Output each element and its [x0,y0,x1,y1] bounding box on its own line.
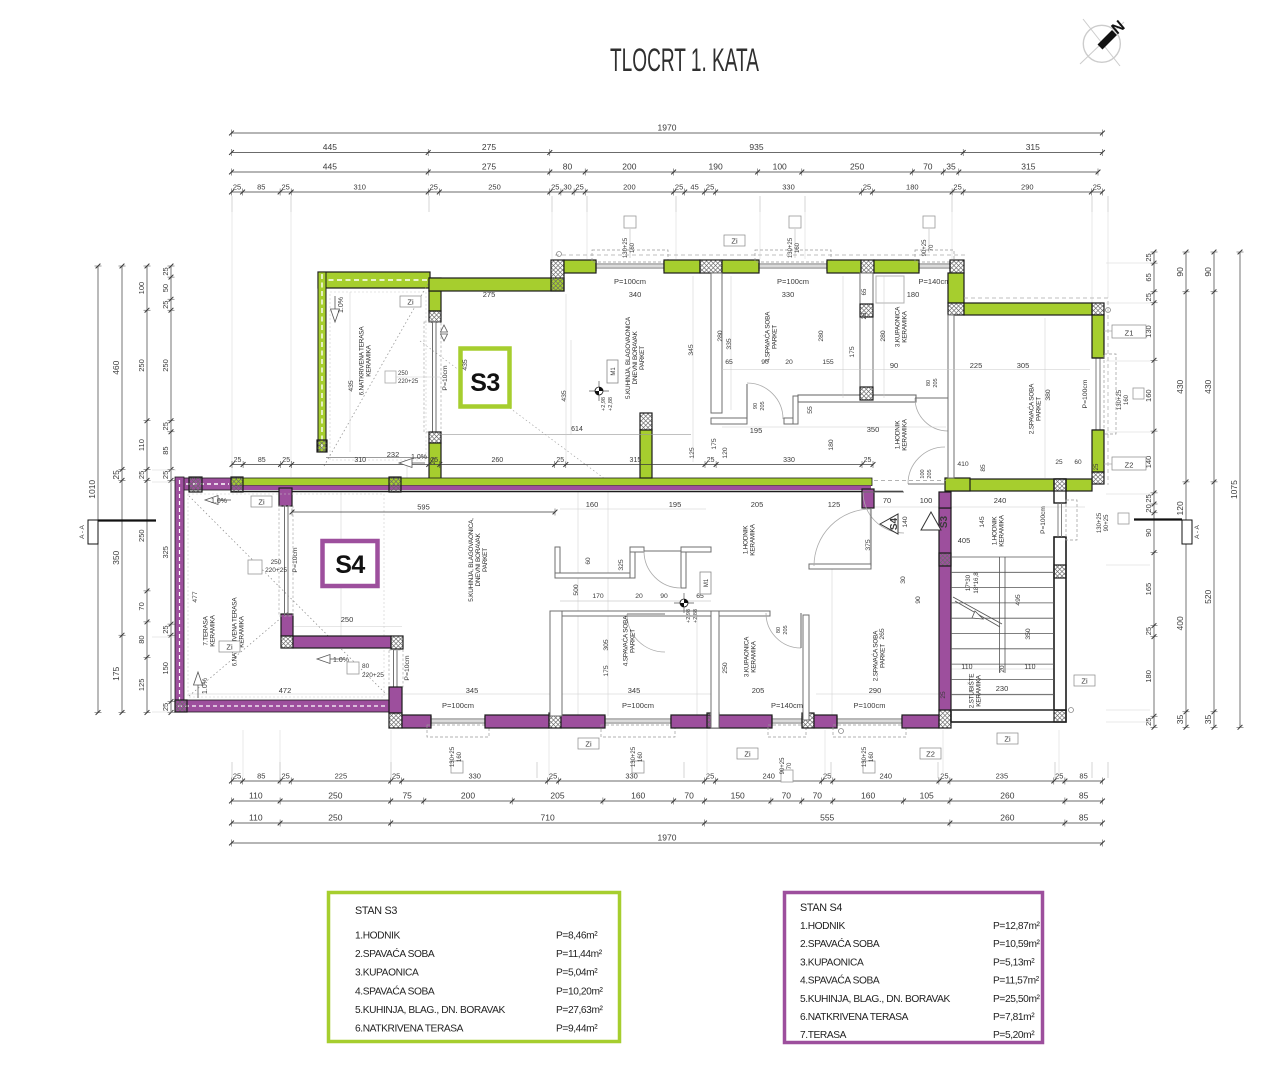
svg-text:+2,88: +2,88 [693,609,699,623]
svg-text:435: 435 [348,380,355,392]
svg-text:TLOCRT 1. KATA: TLOCRT 1. KATA [610,42,759,78]
svg-text:+2,98: +2,98 [601,397,607,411]
svg-text:90: 90 [753,403,759,409]
svg-text:4.SPAVAĆA SOBA: 4.SPAVAĆA SOBA [800,974,880,987]
svg-text:5.KUHINJA, BLAG., DN. BORAVAK: 5.KUHINJA, BLAG., DN. BORAVAK [800,994,951,1005]
svg-text:25: 25 [1144,494,1153,502]
svg-text:130+25: 130+25 [1097,512,1103,533]
svg-text:20: 20 [635,593,643,600]
svg-text:1010: 1010 [87,480,97,499]
svg-text:5.KUHINJA, BLAGOVAONICA,: 5.KUHINJA, BLAGOVAONICA, [468,518,475,602]
svg-text:345: 345 [466,686,479,695]
svg-text:25: 25 [1093,183,1101,192]
svg-text:160: 160 [861,791,875,801]
svg-text:S4: S4 [335,551,365,579]
svg-text:400: 400 [1175,616,1185,630]
svg-text:175: 175 [603,665,610,677]
svg-text:160: 160 [869,751,875,762]
svg-text:25: 25 [863,183,871,192]
svg-text:P=100cm: P=100cm [1082,379,1089,408]
svg-text:25: 25 [953,183,961,192]
svg-text:PARKET: PARKET [772,325,779,349]
svg-text:Z2: Z2 [926,750,935,759]
svg-text:110: 110 [1024,664,1035,671]
svg-text:1.HODNIK: 1.HODNIK [355,931,401,942]
svg-text:Zi: Zi [407,298,414,307]
svg-text:PARKET: PARKET [630,629,637,653]
svg-text:240: 240 [762,772,775,781]
svg-text:90: 90 [915,596,922,604]
svg-text:70: 70 [137,602,146,610]
svg-text:STAN S3: STAN S3 [355,905,397,917]
svg-text:410: 410 [957,461,969,468]
svg-text:Zi: Zi [1081,677,1088,686]
svg-text:250: 250 [271,559,282,566]
svg-text:7.TERASA: 7.TERASA [202,615,209,645]
svg-text:330: 330 [782,183,795,192]
svg-text:125: 125 [689,447,696,459]
svg-text:1.0%: 1.0% [333,657,349,664]
svg-text:130+25: 130+25 [862,746,868,767]
svg-text:25: 25 [282,772,290,781]
svg-text:P=5,04m²: P=5,04m² [556,968,598,979]
svg-text:110: 110 [249,791,263,801]
svg-text:205: 205 [550,791,564,801]
svg-text:200: 200 [622,162,636,172]
svg-text:6.NATKRIVENA TERASA: 6.NATKRIVENA TERASA [800,1012,909,1023]
svg-text:25: 25 [161,267,170,275]
svg-text:160: 160 [795,242,801,253]
svg-text:315: 315 [1021,162,1035,172]
svg-text:Z1: Z1 [1125,329,1134,338]
svg-text:25: 25 [111,470,121,480]
svg-text:250: 250 [488,183,501,192]
svg-text:25: 25 [556,457,564,464]
svg-text:KERAMIKA: KERAMIKA [210,614,217,646]
svg-text:250: 250 [137,359,146,372]
svg-text:165: 165 [1144,583,1153,596]
svg-text:Z2: Z2 [1125,461,1134,470]
svg-text:25: 25 [1055,459,1063,466]
svg-text:4.SPAVAĆA SOBA: 4.SPAVAĆA SOBA [620,615,629,666]
svg-text:85: 85 [257,772,265,781]
svg-text:435: 435 [561,390,568,402]
svg-text:310: 310 [354,457,366,464]
svg-text:195: 195 [750,426,763,435]
svg-text:430: 430 [1203,379,1213,393]
svg-text:240: 240 [994,496,1007,505]
svg-text:Zi: Zi [226,643,233,652]
svg-text:345: 345 [628,686,641,695]
svg-text:230: 230 [996,684,1009,693]
svg-text:275: 275 [482,162,496,172]
svg-text:275: 275 [483,290,496,299]
svg-text:100: 100 [920,469,926,478]
svg-text:350: 350 [1025,628,1032,640]
svg-text:110: 110 [249,813,263,823]
svg-text:S3: S3 [470,369,500,397]
svg-text:PARKET: PARKET [482,548,489,572]
svg-text:250: 250 [850,162,864,172]
svg-text:430: 430 [1175,379,1185,393]
svg-text:105: 105 [920,791,934,801]
svg-text:35: 35 [1203,715,1213,725]
svg-text:25: 25 [864,457,872,464]
svg-text:555: 555 [820,813,834,823]
svg-text:240: 240 [880,772,893,781]
svg-text:250: 250 [328,791,342,801]
svg-text:P=7,81m²: P=7,81m² [993,1012,1035,1023]
svg-text:80: 80 [137,635,146,643]
svg-text:P=140cm: P=140cm [771,701,803,710]
svg-text:150: 150 [161,662,170,675]
svg-text:90: 90 [1203,267,1213,277]
svg-text:70: 70 [813,791,823,801]
svg-text:P=100cm: P=100cm [614,277,646,286]
svg-text:60: 60 [1074,459,1082,466]
svg-text:235: 235 [996,772,1009,781]
svg-text:P=11,57m²: P=11,57m² [993,976,1040,987]
svg-text:330: 330 [782,290,795,299]
svg-text:90: 90 [660,593,668,600]
svg-text:125: 125 [828,500,841,509]
svg-text:340: 340 [629,290,642,299]
svg-text:P=100cm: P=100cm [442,701,474,710]
svg-text:1.HODNIK: 1.HODNIK [894,420,901,450]
svg-text:25: 25 [282,457,290,464]
svg-text:265: 265 [879,628,886,640]
svg-text:25: 25 [233,183,241,192]
svg-text:KERAMIKA: KERAMIKA [902,418,909,450]
svg-text:477: 477 [192,591,199,603]
svg-text:4.SPAVAĆA SOBA: 4.SPAVAĆA SOBA [355,984,435,997]
svg-text:3.KUPAONICA: 3.KUPAONICA [743,636,750,677]
svg-text:110: 110 [961,664,972,671]
svg-text:60: 60 [585,557,592,565]
svg-text:110: 110 [137,439,146,451]
svg-text:100: 100 [920,496,933,505]
svg-text:Zi: Zi [1004,735,1011,744]
svg-text:1.0%: 1.0% [202,678,209,694]
svg-text:P=10cm: P=10cm [404,655,411,680]
svg-text:130+25: 130+25 [1117,389,1123,410]
svg-text:85: 85 [257,183,265,192]
svg-text:180: 180 [828,439,835,451]
svg-text:90: 90 [761,359,769,366]
svg-text:A - A: A - A [1194,524,1201,538]
svg-text:250: 250 [722,662,729,674]
svg-text:P=9,44m²: P=9,44m² [556,1024,598,1035]
svg-text:120: 120 [722,447,729,459]
svg-text:375: 375 [865,539,872,551]
svg-text:30: 30 [563,183,571,192]
svg-text:75: 75 [402,791,412,801]
svg-text:310: 310 [353,183,366,192]
svg-text:160: 160 [638,751,644,762]
svg-text:100: 100 [773,162,787,172]
svg-text:A - A: A - A [79,524,86,538]
svg-text:M1: M1 [704,578,710,587]
svg-text:160: 160 [630,242,636,253]
svg-text:PARKET: PARKET [880,644,887,668]
svg-text:25: 25 [707,457,715,464]
svg-text:20: 20 [1144,504,1153,512]
svg-text:130+25: 130+25 [450,746,456,767]
svg-text:495: 495 [1015,594,1022,606]
svg-text:200: 200 [461,791,475,801]
svg-text:P=27,63m²: P=27,63m² [556,1005,604,1016]
svg-text:P=5,20m²: P=5,20m² [993,1030,1035,1041]
svg-text:250: 250 [398,371,409,377]
svg-text:225: 225 [335,772,348,781]
svg-text:180: 180 [1144,670,1153,683]
svg-text:305: 305 [603,639,610,651]
svg-text:335: 335 [726,338,733,350]
svg-text:55: 55 [807,406,814,414]
svg-text:45: 45 [690,183,698,192]
svg-text:6.NATKRIVENA TERASA: 6.NATKRIVENA TERASA [355,1024,464,1035]
svg-text:220+25: 220+25 [362,672,384,679]
svg-text:25: 25 [161,471,170,479]
svg-text:350: 350 [111,550,121,564]
svg-text:25: 25 [549,772,557,781]
svg-text:80: 80 [362,663,370,670]
svg-text:25: 25 [1144,718,1153,726]
svg-text:65: 65 [1144,273,1153,281]
svg-text:6.NATKRIVENA TERASA: 6.NATKRIVENA TERASA [231,597,238,667]
svg-text:30: 30 [900,576,907,584]
svg-text:1.HODNIK: 1.HODNIK [991,516,998,546]
svg-text:2.SPAVAĆA SOBA: 2.SPAVAĆA SOBA [800,937,880,950]
svg-text:160: 160 [1144,389,1153,402]
svg-text:2.STUBIŠTE: 2.STUBIŠTE [966,674,975,709]
svg-text:305: 305 [1017,361,1030,370]
svg-text:345: 345 [688,344,695,356]
svg-text:25: 25 [823,772,831,781]
svg-text:3.KUPAONICA: 3.KUPAONICA [355,968,419,979]
svg-text:25: 25 [1055,772,1063,781]
svg-text:160: 160 [1124,394,1130,405]
svg-text:1970: 1970 [658,833,677,843]
svg-text:280: 280 [880,330,887,342]
svg-text:25: 25 [551,183,559,192]
svg-text:315: 315 [1026,142,1040,152]
svg-text:P=10cm: P=10cm [442,365,449,390]
svg-text:P=100cm: P=100cm [622,701,654,710]
svg-text:P=5,13m²: P=5,13m² [993,957,1035,968]
svg-text:595: 595 [417,503,430,512]
svg-text:380: 380 [1045,389,1052,401]
svg-text:Zi: Zi [585,740,592,749]
svg-text:STAN S4: STAN S4 [800,902,842,914]
svg-text:2.SPAVAĆA SOBA: 2.SPAVAĆA SOBA [1026,383,1035,434]
svg-text:195: 195 [669,500,682,509]
svg-text:25: 25 [430,183,438,192]
svg-text:25: 25 [940,691,947,699]
svg-text:190: 190 [709,162,723,172]
svg-text:70: 70 [929,244,935,251]
svg-text:M1: M1 [611,367,617,376]
svg-text:P=10cm: P=10cm [292,547,299,572]
svg-text:6.NATKRIVENA TERASA: 6.NATKRIVENA TERASA [358,326,365,396]
svg-text:KERAMIKA: KERAMIKA [976,674,983,706]
svg-text:325: 325 [618,559,625,571]
svg-text:P=10,20m²: P=10,20m² [556,986,604,997]
svg-text:KERAMIKA: KERAMIKA [751,640,758,672]
svg-text:80: 80 [563,162,573,172]
svg-text:80: 80 [776,627,782,633]
svg-text:25: 25 [576,183,584,192]
svg-text:85: 85 [1079,813,1089,823]
svg-text:325: 325 [161,546,170,559]
svg-text:KERAMIKA: KERAMIKA [750,523,757,555]
svg-text:710: 710 [541,813,555,823]
svg-text:P=12,87m²: P=12,87m² [993,921,1041,932]
svg-text:500: 500 [573,584,580,596]
svg-text:S3: S3 [939,515,950,528]
svg-text:20: 20 [999,665,1006,673]
svg-text:250: 250 [137,529,146,542]
svg-text:50: 50 [161,284,170,292]
svg-text:5.KUHINJA, BLAG., DN. BORAVAK: 5.KUHINJA, BLAG., DN. BORAVAK [355,1005,506,1016]
svg-text:PARKET: PARKET [1036,397,1043,421]
svg-text:P=11,44m²: P=11,44m² [556,949,603,960]
svg-text:200: 200 [623,183,636,192]
svg-text:120: 120 [1175,501,1185,515]
svg-text:+2,88: +2,88 [608,397,614,411]
svg-text:20: 20 [785,359,793,366]
svg-text:1.0%: 1.0% [411,454,427,461]
svg-text:Zi: Zi [258,498,265,507]
svg-text:18*16,8: 18*16,8 [973,572,980,594]
svg-text:100: 100 [137,282,146,295]
svg-text:150: 150 [731,791,745,801]
svg-text:90: 90 [1144,529,1153,537]
svg-text:250: 250 [328,813,342,823]
svg-text:160: 160 [586,500,599,509]
svg-text:P=100cm: P=100cm [777,277,809,286]
svg-text:25: 25 [1144,253,1153,261]
svg-text:2.SPAVAĆA SOBA: 2.SPAVAĆA SOBA [355,947,435,960]
svg-text:3.KUPAONICA: 3.KUPAONICA [894,306,901,347]
svg-text:25: 25 [282,183,290,192]
svg-text:85: 85 [1079,791,1089,801]
svg-text:25: 25 [161,422,170,430]
svg-text:35: 35 [946,162,956,172]
svg-text:1.HODNIK: 1.HODNIK [742,525,749,555]
svg-text:+2,98: +2,98 [686,609,692,623]
svg-text:P=140cm: P=140cm [919,277,951,286]
svg-text:P=8,46m²: P=8,46m² [556,931,598,942]
svg-text:260: 260 [1000,813,1014,823]
svg-text:350: 350 [867,425,880,434]
svg-text:205: 205 [760,401,766,410]
svg-text:180: 180 [907,290,920,299]
svg-text:1970: 1970 [658,123,677,133]
svg-text:1075: 1075 [1229,480,1239,499]
svg-text:25: 25 [392,772,400,781]
svg-text:175: 175 [849,346,856,358]
svg-text:445: 445 [323,162,337,172]
svg-text:70: 70 [923,162,933,172]
svg-text:280: 280 [818,330,825,342]
svg-text:225: 225 [970,361,983,370]
svg-text:155: 155 [822,359,834,366]
svg-text:25: 25 [862,312,868,319]
svg-text:125: 125 [137,679,146,692]
svg-text:140: 140 [902,516,909,528]
svg-text:85: 85 [161,446,170,454]
svg-text:85: 85 [258,457,266,464]
svg-text:520: 520 [1203,589,1213,603]
svg-text:180: 180 [906,183,919,192]
svg-text:KERAMIKA: KERAMIKA [902,310,909,342]
svg-text:25: 25 [706,183,714,192]
svg-text:275: 275 [482,142,496,152]
svg-text:290: 290 [869,686,882,695]
svg-text:Zi: Zi [731,237,738,246]
svg-text:25: 25 [137,471,146,479]
svg-text:35: 35 [1175,715,1185,725]
svg-text:220+25: 220+25 [265,567,287,574]
svg-text:260: 260 [491,457,503,464]
svg-text:7.TERASA: 7.TERASA [800,1030,847,1041]
svg-text:90+25: 90+25 [780,757,786,775]
svg-text:170: 170 [592,593,604,600]
svg-text:315: 315 [630,457,642,464]
svg-text:PARKET: PARKET [639,346,646,370]
svg-text:P=100cm: P=100cm [854,701,886,710]
svg-text:DNEVNI BORAVAK: DNEVNI BORAVAK [475,533,482,587]
svg-text:P=100cm: P=100cm [1040,506,1047,534]
svg-text:145: 145 [979,516,986,528]
svg-text:405: 405 [958,536,971,545]
svg-text:205: 205 [752,686,765,695]
svg-text:205: 205 [783,625,789,634]
svg-text:Zi: Zi [744,750,751,759]
svg-text:DNEVNI BORAVAK: DNEVNI BORAVAK [632,331,639,385]
svg-text:175: 175 [111,666,121,680]
svg-text:435: 435 [462,359,469,371]
svg-text:S4: S4 [889,517,900,530]
svg-text:1.0%: 1.0% [338,297,345,313]
svg-text:80: 80 [926,380,932,386]
svg-text:5.KUHINJA, BLAGOVAONICA: 5.KUHINJA, BLAGOVAONICA [625,316,632,399]
svg-text:65: 65 [725,359,733,366]
svg-text:175: 175 [711,438,718,450]
svg-text:130+25: 130+25 [631,746,637,767]
svg-text:70: 70 [782,791,792,801]
svg-text:1.0%: 1.0% [211,498,227,505]
svg-text:614: 614 [571,426,583,433]
svg-text:160: 160 [457,751,463,762]
svg-text:25: 25 [234,457,242,464]
svg-text:330: 330 [468,772,481,781]
svg-text:205: 205 [751,500,764,509]
svg-text:25: 25 [940,772,948,781]
svg-text:90+25: 90+25 [1104,514,1110,532]
svg-text:4.SPAVAĆA SOBA: 4.SPAVAĆA SOBA [762,311,771,362]
svg-text:25: 25 [161,301,170,309]
svg-text:160: 160 [631,791,645,801]
svg-text:65: 65 [862,288,868,295]
svg-text:25: 25 [675,183,683,192]
svg-text:KERAMIKA: KERAMIKA [999,514,1006,546]
svg-text:205: 205 [933,378,939,387]
svg-text:17*30: 17*30 [965,574,972,591]
svg-text:70: 70 [787,762,793,769]
svg-text:445: 445 [323,142,337,152]
